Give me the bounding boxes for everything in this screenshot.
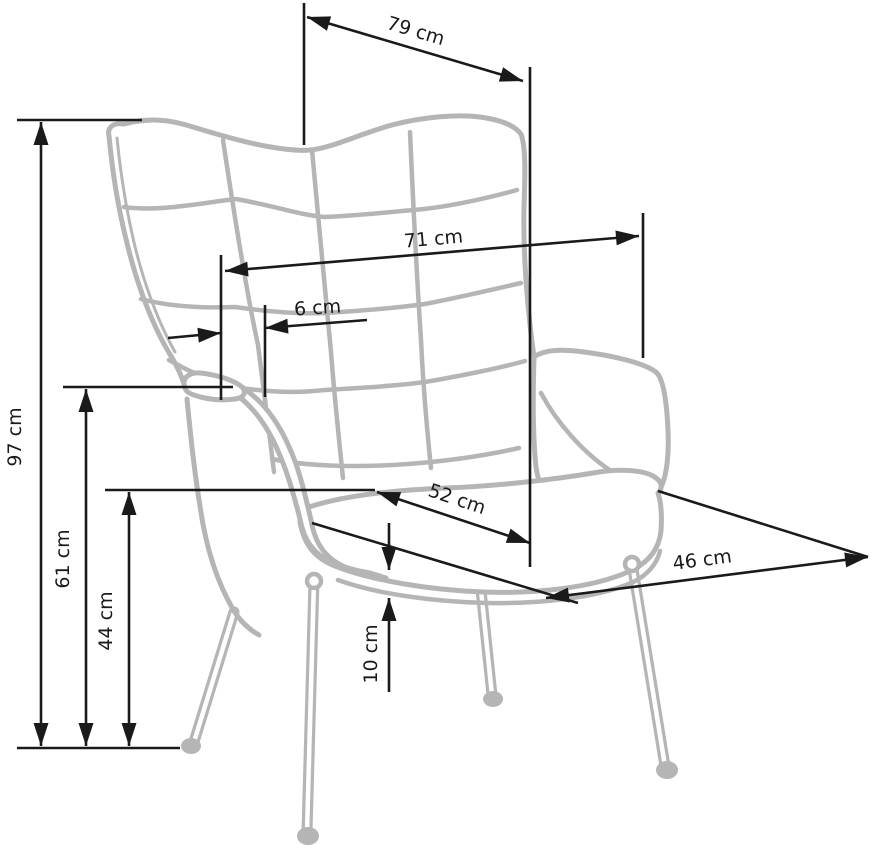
dim-label-97cm: 97 cm bbox=[4, 407, 26, 466]
dim-label-6cm: 6 cm bbox=[293, 295, 342, 320]
chair-drawing bbox=[109, 116, 678, 845]
dim-arrow-71cm-head bbox=[615, 230, 639, 245]
diagram-canvas: 79 cm 71 cm 6 cm 97 cm 61 cm 44 cm 10 cm… bbox=[0, 0, 875, 859]
dim-label-10cm: 10 cm bbox=[360, 624, 382, 683]
left-side-panel-edge bbox=[187, 399, 259, 635]
dim-arrow-97cm-start-head bbox=[34, 122, 49, 145]
dim-label-46cm: 46 cm bbox=[671, 545, 733, 575]
dim-arrow-6cm-right-head bbox=[265, 319, 289, 334]
front-foot bbox=[297, 827, 319, 845]
front-leg-knob bbox=[307, 574, 321, 588]
left-foot bbox=[181, 738, 201, 754]
right-leg-highlight bbox=[632, 563, 665, 766]
dim-arrow-61cm-start-head bbox=[79, 389, 94, 412]
back-foot bbox=[483, 691, 503, 707]
dim-arrow-79cm-head bbox=[499, 67, 523, 81]
right-leg-knob bbox=[625, 557, 639, 571]
armchair-dimension-diagram: 79 cm 71 cm 6 cm 97 cm 61 cm 44 cm 10 cm… bbox=[0, 0, 875, 859]
dimension-labels: 79 cm 71 cm 6 cm 97 cm 61 cm 44 cm 10 cm… bbox=[4, 12, 733, 683]
dim-arrow-61cm-head bbox=[79, 723, 94, 746]
dim-label-61cm: 61 cm bbox=[52, 529, 74, 588]
back-seam-vertical-3 bbox=[410, 132, 431, 468]
dim-arrow-44cm-head bbox=[122, 723, 137, 746]
dim-arrow-97cm-head bbox=[34, 723, 49, 746]
right-foot bbox=[656, 761, 678, 779]
dim-arrow-10cm-bottom-head bbox=[382, 598, 397, 621]
dim-arrow-44cm-start-head bbox=[122, 492, 137, 515]
left-leg-highlight bbox=[194, 612, 234, 742]
back-seam-horizontal-4 bbox=[272, 448, 519, 466]
dim-arrow-6cm-left-head bbox=[197, 328, 221, 343]
dim-label-71cm: 71 cm bbox=[403, 225, 464, 252]
chair-legs bbox=[194, 563, 665, 832]
back-seam-horizontal-1 bbox=[124, 190, 517, 217]
dim-label-44cm: 44 cm bbox=[95, 591, 117, 650]
dim-label-79cm: 79 cm bbox=[384, 12, 447, 50]
dim-arrow-79cm-start-head bbox=[307, 16, 331, 30]
extension-line-9 bbox=[658, 491, 868, 557]
dim-arrow-71cm-start-head bbox=[225, 262, 249, 277]
